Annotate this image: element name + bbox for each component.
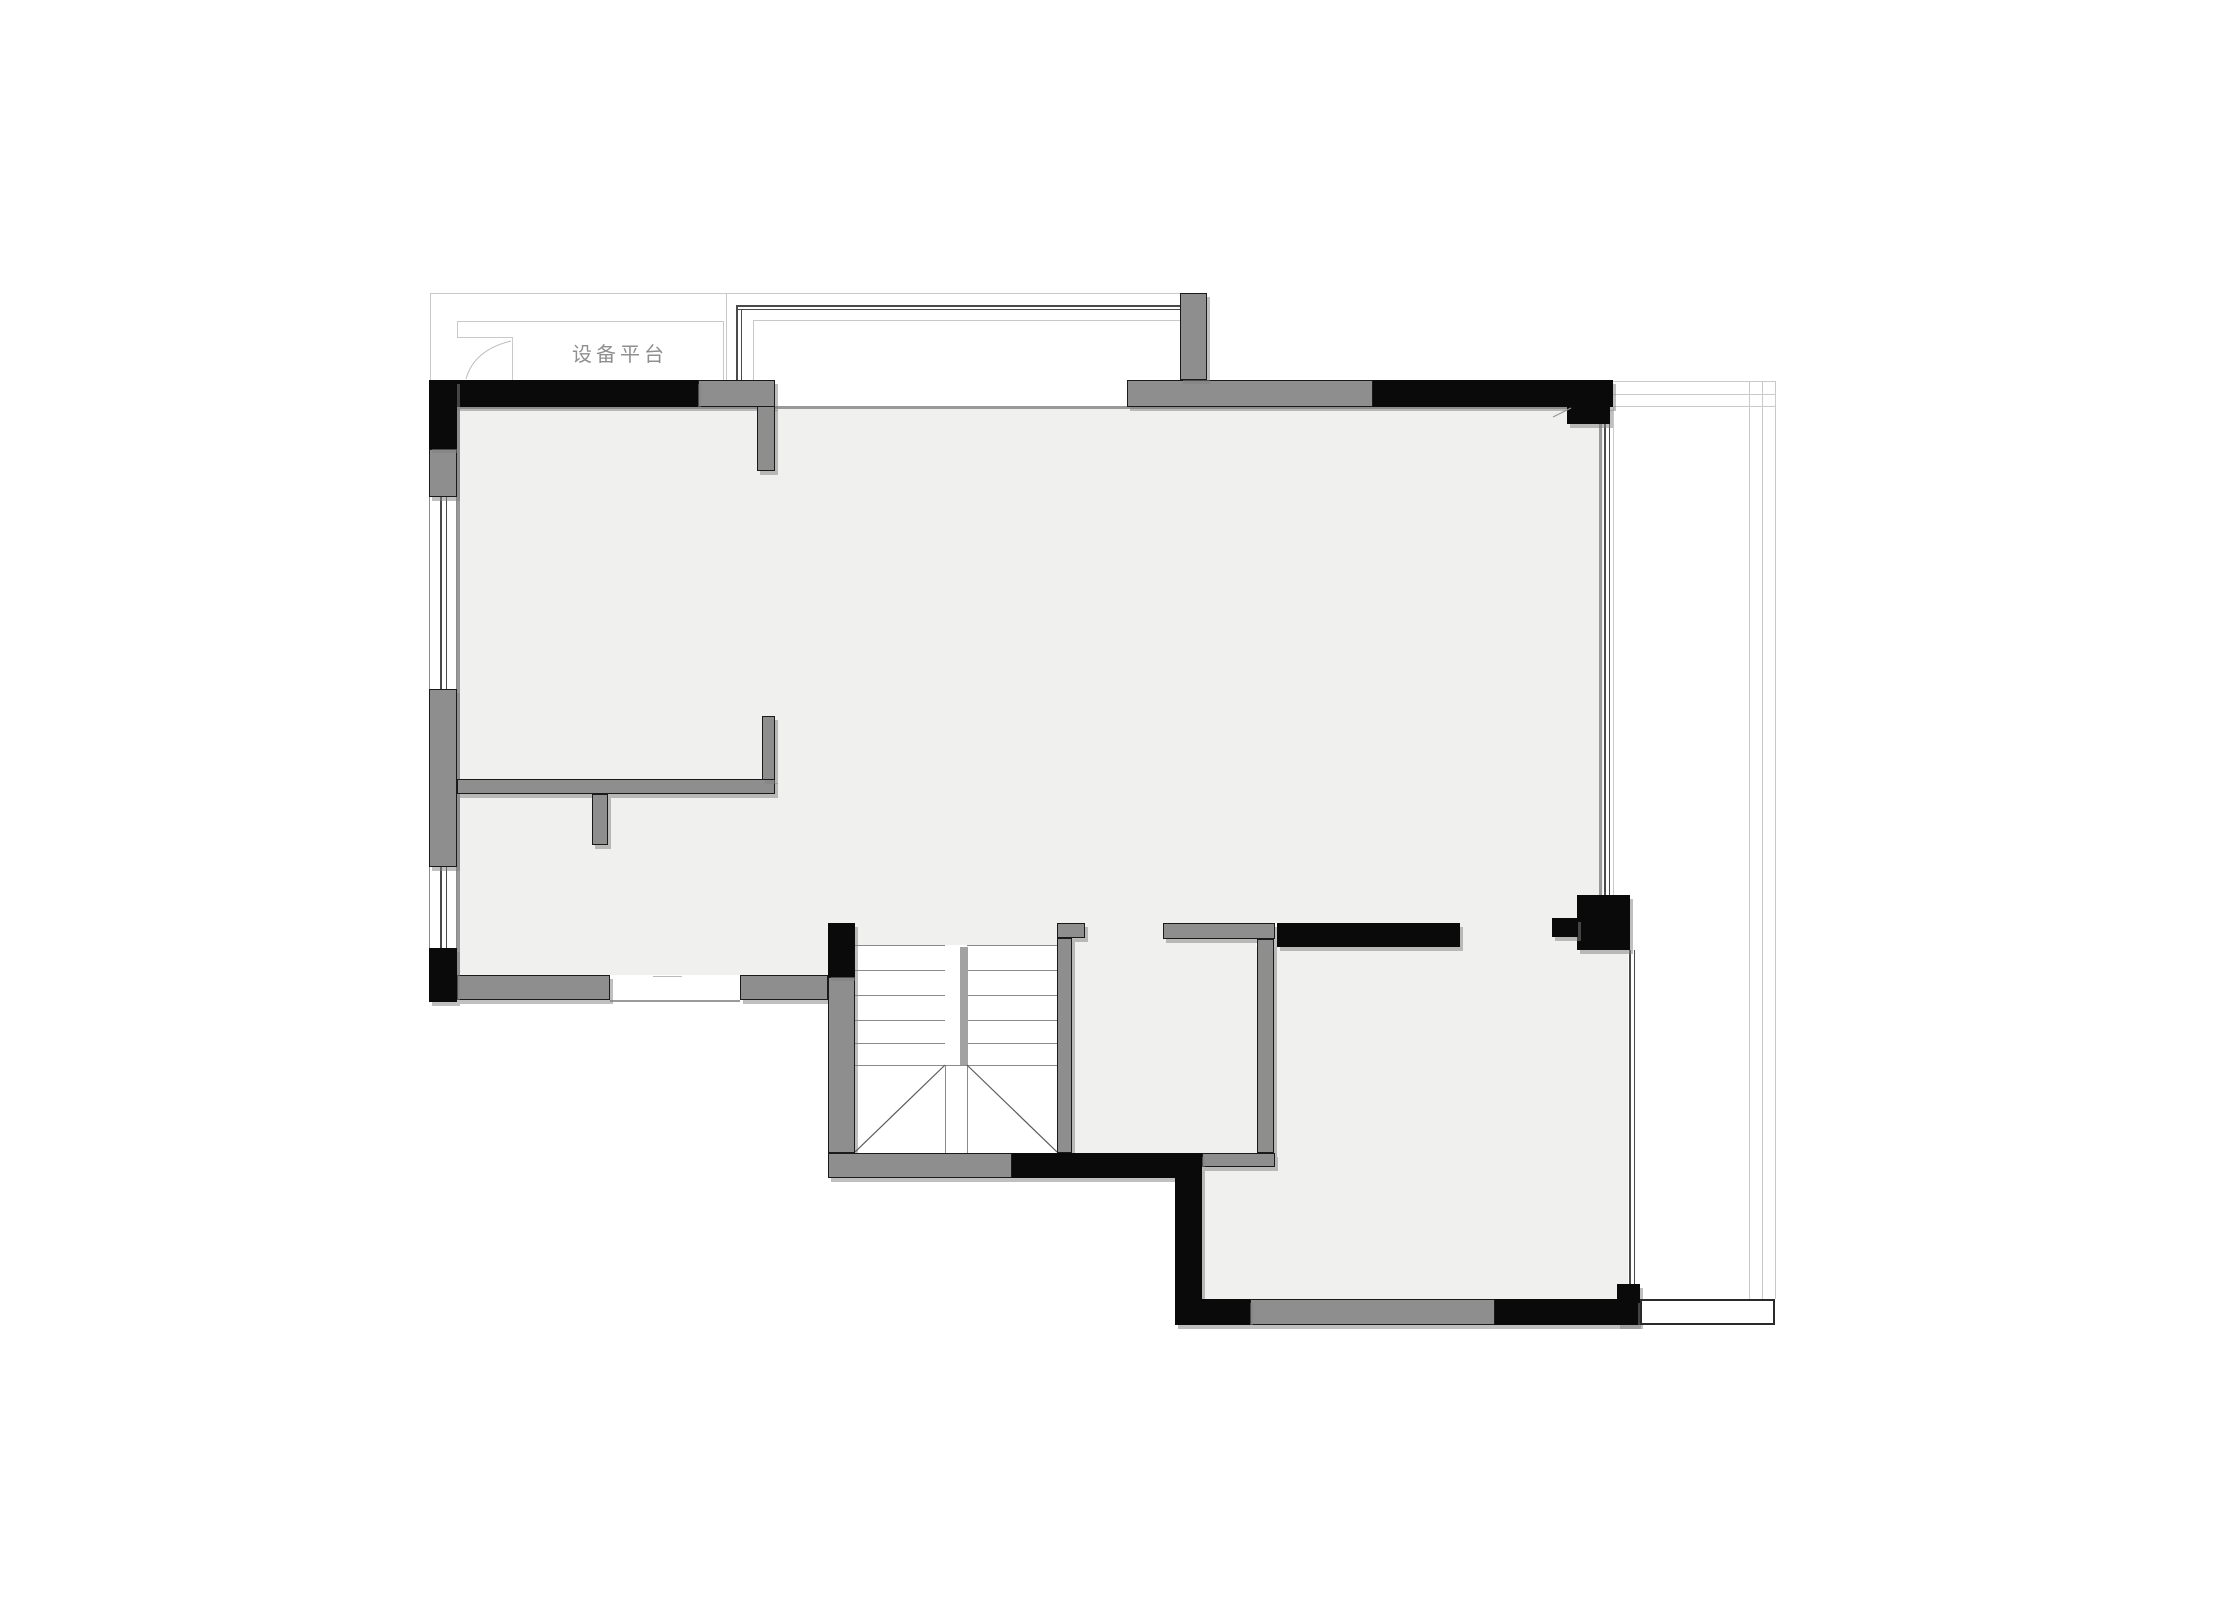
stair-tread-left-3 bbox=[855, 995, 945, 996]
right-window-lower-glass-1 bbox=[1629, 950, 1631, 1284]
small-room-door-floor bbox=[1085, 923, 1163, 939]
stair-divider-wall bbox=[960, 947, 968, 1065]
right-window-upper-glass-2 bbox=[1609, 424, 1610, 897]
wall-black-top-right-stub bbox=[1567, 406, 1610, 424]
wall-top-left-segment bbox=[698, 380, 775, 407]
wall-stair-right-cap bbox=[1057, 923, 1085, 938]
right-wall-inner-face-line bbox=[1599, 407, 1602, 897]
equipment-platform-label: 设备平台 bbox=[545, 338, 695, 367]
bay-inner-left-line bbox=[753, 320, 754, 380]
wall-stair-bottom-gray bbox=[828, 1153, 1012, 1178]
stair-landing-line bbox=[855, 1065, 1057, 1066]
left-window2-glass-1 bbox=[440, 867, 442, 948]
platform-box-right-line bbox=[512, 337, 513, 380]
wall-small-room-bottom bbox=[1202, 1153, 1275, 1167]
balcony-right-inner-line bbox=[1749, 381, 1750, 1299]
wall-interior-stub bbox=[592, 794, 608, 845]
stair-center-line-right bbox=[967, 1065, 968, 1153]
wall-black-left-corner bbox=[429, 380, 457, 449]
bay-window-glass-left-2 bbox=[741, 309, 742, 380]
balcony-top-line-2 bbox=[1613, 394, 1775, 395]
platform-outer-right-line bbox=[726, 294, 727, 380]
stair-center-line-left bbox=[945, 1065, 946, 1153]
right-window-lower-glass-2 bbox=[1634, 950, 1635, 1284]
left-window2-glass-2 bbox=[446, 867, 447, 948]
stair-tread-left-4 bbox=[855, 1020, 945, 1021]
left-window1-glass-2 bbox=[446, 497, 447, 689]
stair-tread-left-2 bbox=[855, 970, 945, 971]
wall-stair-left bbox=[828, 977, 855, 1153]
platform-box-top-line bbox=[457, 337, 512, 338]
platform-drain-curve bbox=[466, 341, 511, 379]
bay-window-glass-line-1 bbox=[736, 305, 1181, 307]
wall-interior-horizontal bbox=[457, 779, 775, 794]
bay-window-glass-left-1 bbox=[736, 305, 738, 380]
wall-black-lower-room-top bbox=[1277, 923, 1460, 947]
wall-top-left-stem bbox=[757, 406, 775, 471]
door-leaf-mark bbox=[653, 976, 682, 977]
left-window1-outer-line bbox=[429, 497, 430, 689]
wall-black-stair-column bbox=[828, 923, 855, 977]
balcony-right-mid-line bbox=[1762, 381, 1763, 1299]
wall-small-room-right bbox=[1257, 939, 1274, 1153]
stairwell-background bbox=[855, 945, 1057, 1153]
wall-black-top-left bbox=[429, 380, 698, 407]
balcony-top-line-3 bbox=[1613, 406, 1775, 407]
wall-black-stair-bottom bbox=[1012, 1153, 1175, 1178]
wall-top-t-bar bbox=[1127, 380, 1373, 407]
wall-black-bottom-left bbox=[1202, 1299, 1250, 1325]
wall-black-bottom-right bbox=[1495, 1299, 1638, 1325]
stair-tread-right-1 bbox=[967, 945, 1057, 946]
wall-stair-right bbox=[1057, 938, 1072, 1153]
left-window1-glass-1 bbox=[440, 497, 442, 689]
wall-left-gray-upper bbox=[429, 449, 457, 497]
stair-tread-right-5 bbox=[967, 1043, 1057, 1044]
wall-top-t-stem bbox=[1180, 293, 1207, 380]
wall-black-right-column bbox=[1577, 895, 1630, 950]
bay-window-glass-line-2 bbox=[736, 309, 1181, 310]
wall-small-room-top bbox=[1163, 923, 1275, 939]
balcony-top-line-1 bbox=[1613, 381, 1775, 382]
left-window2-outer-line bbox=[429, 867, 430, 948]
balcony-left-edge-line bbox=[1613, 406, 1614, 897]
wall-black-left-bottom-corner bbox=[429, 948, 457, 1002]
stair-tread-left-1 bbox=[855, 945, 945, 946]
wall-black-pillar bbox=[1175, 1153, 1202, 1325]
platform-outer-left-line bbox=[430, 293, 431, 380]
left-wall-inner-face-line bbox=[457, 407, 460, 975]
platform-outer-top-line bbox=[430, 293, 1180, 294]
wall-black-right-column-stub bbox=[1552, 918, 1578, 937]
wall-left-gray-long bbox=[429, 689, 457, 867]
wall-bottom-gray-mid bbox=[1250, 1299, 1495, 1325]
main-room-floor bbox=[457, 407, 1603, 923]
stair-top-floor-strip bbox=[855, 923, 1057, 945]
bottom-window-sill-box bbox=[1640, 1299, 1775, 1325]
right-window-upper-glass-1 bbox=[1604, 424, 1606, 897]
balcony-right-outer-line bbox=[1775, 381, 1776, 1299]
wall-bottom-left-a bbox=[457, 975, 610, 1000]
wall-black-top-right bbox=[1373, 380, 1613, 407]
stair-tread-right-3 bbox=[967, 995, 1057, 996]
platform-inner-top-line bbox=[457, 321, 723, 322]
stair-tread-left-5 bbox=[855, 1043, 945, 1044]
living-lower-floor bbox=[457, 923, 828, 975]
wall-bottom-left-b bbox=[740, 975, 828, 1000]
stair-tread-right-2 bbox=[967, 970, 1057, 971]
platform-inner-right-line bbox=[723, 321, 724, 380]
wall-interior-vertical bbox=[762, 716, 775, 780]
stair-tread-right-4 bbox=[967, 1020, 1057, 1021]
floor-plan-canvas: 设备平台 bbox=[0, 0, 2218, 1621]
door-opening-bottom-line bbox=[610, 1000, 740, 1002]
bay-inner-top-line bbox=[753, 320, 1180, 321]
platform-inner-left-line bbox=[457, 321, 458, 337]
